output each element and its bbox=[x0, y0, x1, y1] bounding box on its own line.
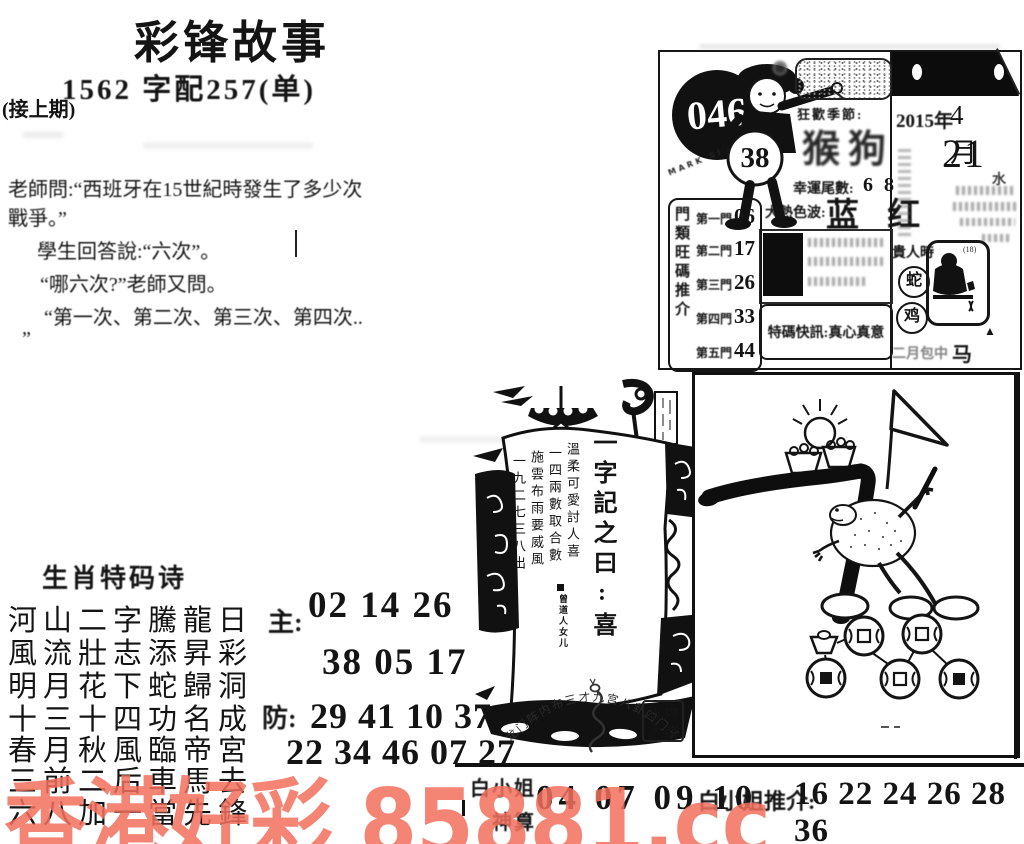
snake-icon bbox=[590, 679, 604, 752]
main-numbers-line1: 02 14 26 bbox=[308, 584, 454, 627]
hot-color-label: 大熱色波: bbox=[765, 202, 826, 222]
issue-code-subtitle: 1562 字配257(单) bbox=[62, 66, 316, 108]
illegible-text-line bbox=[808, 238, 886, 247]
noble-zodiac-rooster: 鸡 bbox=[896, 302, 928, 334]
deity-box: (18) bbox=[926, 240, 990, 326]
black-square bbox=[763, 233, 803, 296]
scan-streak bbox=[23, 132, 63, 138]
almanac-smudge bbox=[982, 234, 1012, 242]
ship-verse-1: 溫柔可愛討人喜 bbox=[563, 442, 582, 597]
picture-puzzle-frame bbox=[692, 372, 1020, 758]
stamp-char: 水 bbox=[648, 721, 661, 740]
poem-title: 生肖特码诗 bbox=[42, 558, 187, 595]
door-name: 第一門 bbox=[696, 212, 732, 226]
almanac-smudge bbox=[953, 202, 1017, 211]
door-name: 第二門 bbox=[696, 244, 732, 258]
binding-hole bbox=[994, 64, 1004, 80]
issue-info-card: 046 MARK SIX 38 狂歡季節: 猴狗 bbox=[658, 50, 1022, 370]
special-news-text: 特碼快訊:真心真意 bbox=[762, 322, 890, 342]
door-row: 第一門06 bbox=[696, 204, 758, 229]
stamp-char: 部 bbox=[665, 721, 678, 740]
door-number: 17 bbox=[734, 236, 755, 260]
scanned-lottery-tip-sheet: 彩锋故事 1562 字配257(单) (接上期) 老師問:“西班牙在15世紀時發… bbox=[0, 0, 1024, 844]
story-line: 戰爭。” bbox=[8, 202, 67, 231]
triangle-mark: ▲ bbox=[984, 324, 996, 339]
scan-streak bbox=[143, 143, 313, 148]
door-row: 第四門33 bbox=[696, 304, 758, 329]
stamp-char: 内 bbox=[665, 703, 678, 722]
special-news-box: 特碼快訊:真心真意 bbox=[759, 304, 893, 360]
calendar-day: 21 bbox=[942, 130, 986, 177]
month-pack-smudge: 二月包中 bbox=[892, 343, 948, 363]
ink-blot bbox=[772, 60, 788, 76]
illegible-text-line bbox=[808, 257, 886, 266]
ship-verse-2: 一四兩數取合數 bbox=[545, 446, 564, 601]
door-number: 33 bbox=[734, 304, 755, 328]
door-name: 第五門 bbox=[696, 346, 732, 360]
main-numbers-label: 主: bbox=[268, 602, 303, 639]
frog-icon bbox=[813, 469, 945, 615]
story-line: 老師問:“西班牙在15世紀時發生了多少次 bbox=[8, 173, 362, 202]
recommendation-numbers: 16 22 24 26 28 36 bbox=[794, 776, 1024, 844]
story-line: ” bbox=[22, 328, 31, 351]
story-line: “哪六次?”老師又問。 bbox=[40, 268, 227, 297]
doors-box: 門類旺碼推介 第一門06 第二門17 第三門26 第四門33 第五門44 bbox=[668, 198, 762, 372]
main-numbers-line2: 38 05 17 bbox=[322, 641, 468, 684]
doors-side-label: 門類旺碼推介 bbox=[671, 206, 692, 366]
tip-text-box bbox=[759, 229, 893, 304]
door-row: 第二門17 bbox=[696, 236, 758, 261]
scan-tick-artifact bbox=[295, 230, 297, 257]
door-number: 44 bbox=[734, 338, 755, 362]
signature-seal-dot bbox=[557, 584, 564, 591]
story-line: “第一次、第二次、第三次、第四次.. bbox=[44, 301, 363, 330]
recommended-ball-number: 38 bbox=[727, 142, 783, 175]
page-title: 彩锋故事 bbox=[134, 6, 330, 71]
ship-verse-3: 施雲布雨要威風 bbox=[527, 450, 546, 605]
inner-stamp-box: 心 内 水 部 bbox=[642, 700, 684, 742]
frame-shadow-line-right bbox=[1014, 374, 1017, 759]
frog-puzzle-drawing bbox=[695, 375, 1017, 755]
site-watermark: 香港好彩 85881.cc bbox=[4, 748, 770, 844]
illegible-text-line bbox=[808, 277, 868, 286]
ship-motto-text: 一字記之曰:喜 bbox=[585, 430, 620, 665]
almanac-water-char: 水 bbox=[992, 169, 1006, 189]
deity-box-note: (18) bbox=[963, 245, 976, 254]
continued-note: (接上期) bbox=[2, 93, 75, 122]
door-number: 26 bbox=[734, 270, 755, 294]
deity-figure-illustration bbox=[929, 243, 981, 317]
ingot-icon bbox=[811, 631, 837, 653]
guard-numbers-label: 防: bbox=[262, 698, 297, 735]
almanac-smudge bbox=[960, 218, 1015, 226]
binding-hole bbox=[912, 64, 922, 80]
door-row: 第三門26 bbox=[696, 270, 758, 295]
season-zodiac-glyphs: 猴狗 bbox=[802, 118, 894, 173]
calendar-year: 2015年 bbox=[896, 106, 953, 133]
ship-signature: 曾道人女儿 bbox=[557, 594, 570, 664]
scan-streak bbox=[700, 45, 1000, 48]
door-number: 06 bbox=[734, 204, 755, 228]
stamp-char: 心 bbox=[648, 703, 661, 722]
door-name: 第三門 bbox=[696, 278, 732, 292]
door-row: 第五門44 bbox=[696, 338, 758, 363]
door-name: 第四門 bbox=[696, 312, 732, 326]
ship-verse-4: 一九二七三八出 bbox=[509, 454, 528, 604]
speech-bubble bbox=[795, 58, 893, 100]
almanac-smudge bbox=[898, 148, 911, 236]
story-line: 學生回答說:“六次”。 bbox=[37, 235, 220, 264]
coin-icons bbox=[807, 615, 978, 698]
